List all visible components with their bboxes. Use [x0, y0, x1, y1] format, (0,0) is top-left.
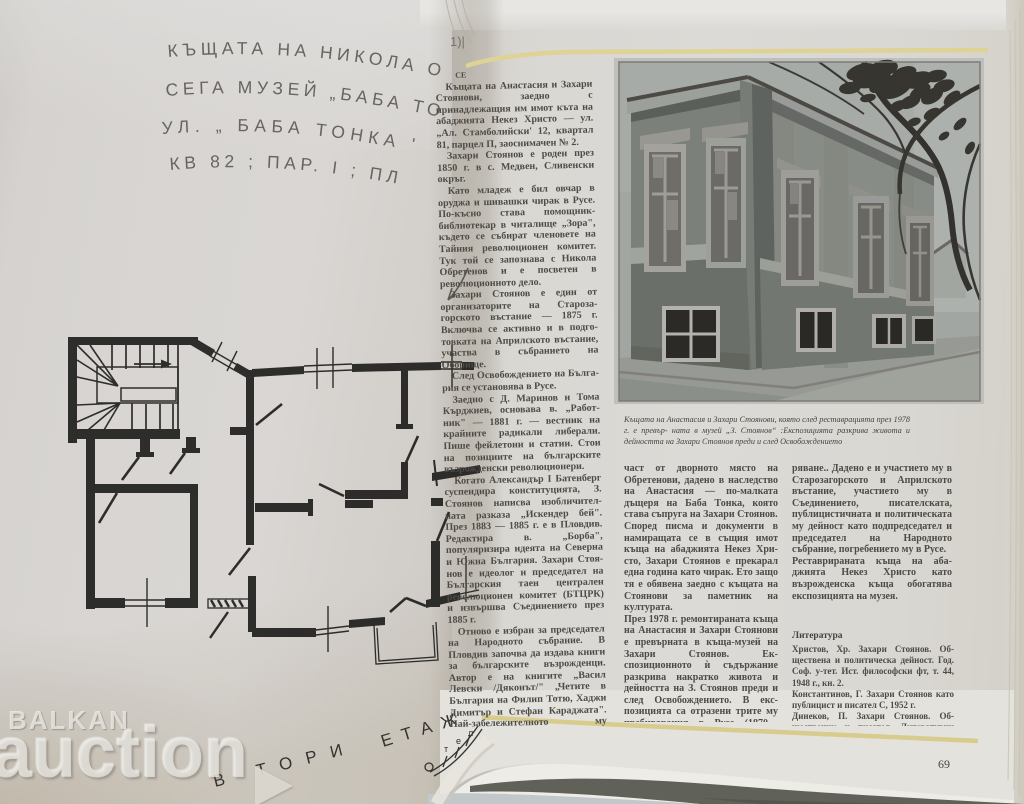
svg-text:т: т: [444, 744, 448, 754]
svg-text:е: е: [456, 736, 461, 746]
